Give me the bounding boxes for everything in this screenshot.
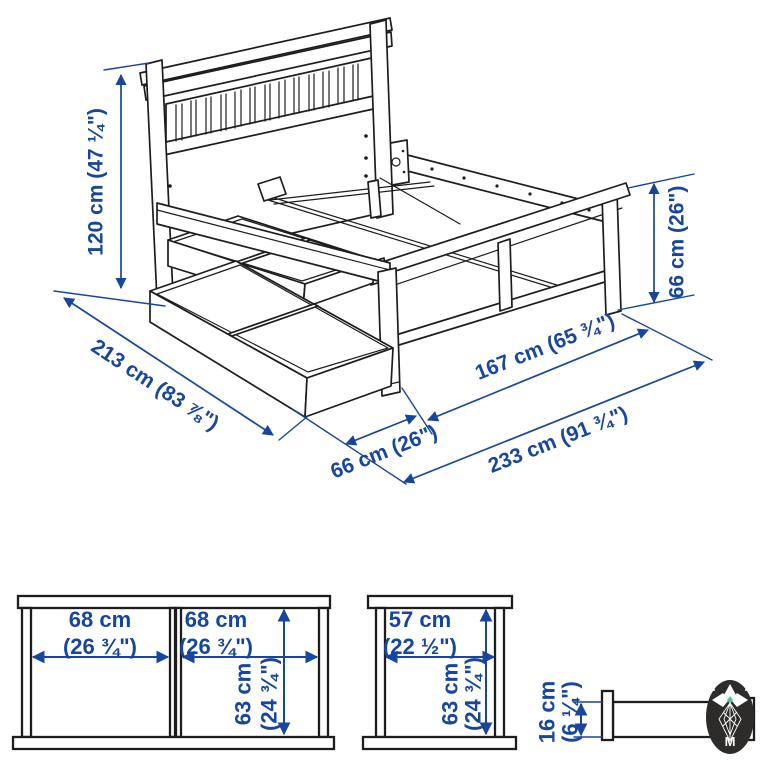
watermark-monogram: M (725, 734, 736, 749)
front-view-top-rail (18, 596, 330, 608)
front-view-center-post-b (176, 608, 181, 737)
profile-height-in-label: (6 ¼") (558, 681, 583, 743)
profile-height-cm-label: 16 cm (535, 681, 560, 743)
dim-total-length-line (404, 362, 704, 482)
dim-footboard-height-label: 66 cm (26") (666, 186, 689, 299)
front-view: 68 cm (26 ¾") 68 cm (26 ¾") 63 cm (24 ¾"… (13, 596, 334, 749)
side-view-right-post (495, 608, 504, 737)
front-view-height-cm-label: 63 cm (231, 663, 256, 725)
side-view-width-in-label: (22 ½") (383, 634, 457, 659)
dimension-diagram-page: 120 cm (47 ¼") 213 cm (83 ⅞") 66 cm (26"… (0, 0, 768, 768)
front-view-center-post-a (170, 608, 175, 737)
side-view: 57 cm (22 ½") 63 cm (24 ¾") (363, 596, 516, 749)
front-view-left-cm-label: 68 cm (69, 607, 131, 632)
bed-dimension-diagram: 120 cm (47 ¼") 213 cm (83 ⅞") 66 cm (26"… (0, 0, 768, 768)
side-view-width-cm-label: 57 cm (389, 607, 451, 632)
front-view-bottom-rail (13, 737, 334, 749)
midbeam-leg (368, 180, 381, 218)
bed-isometric-view (140, 18, 630, 417)
front-view-right-in-label: (26 ¾") (179, 634, 253, 659)
dim-headboard-height-label: 120 cm (47 ¼") (85, 108, 108, 256)
side-view-height-in-label: (24 ¾") (461, 657, 486, 731)
front-view-height-in-label: (24 ¾") (257, 657, 282, 731)
footboard-far-post (602, 192, 621, 315)
side-view-bottom-rail (363, 737, 516, 749)
profile-drawer-front-panel (602, 691, 613, 740)
dim-frame-width-label: 167 cm (65 ¾") (472, 309, 618, 385)
front-view-left-in-label: (26 ¾") (63, 634, 137, 659)
front-view-right-post (319, 608, 328, 737)
side-view-height-cm-label: 63 cm (438, 663, 463, 725)
footboard-center-stile (498, 239, 512, 311)
watermark-logo: M (706, 680, 754, 754)
side-view-left-post (376, 608, 385, 737)
front-view-right-cm-label: 68 cm (185, 607, 247, 632)
front-view-left-post (22, 608, 31, 737)
